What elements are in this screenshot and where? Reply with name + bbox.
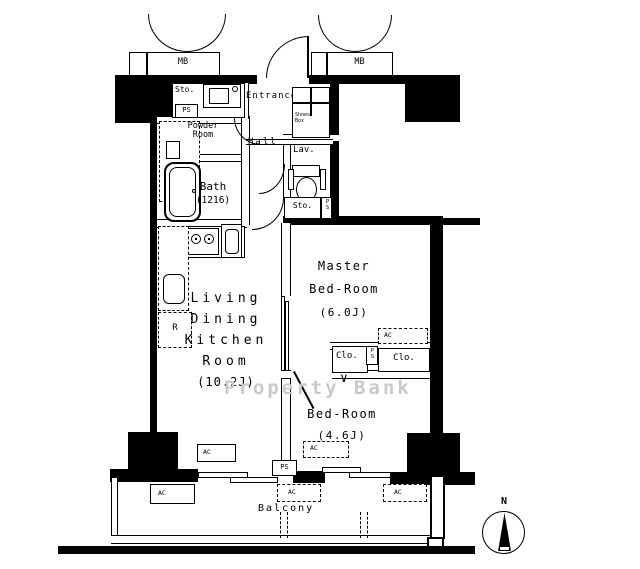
toilet-tank-icon [292,165,320,177]
washer-icon [209,88,229,104]
ground-line [58,546,475,554]
shoes-box-label: Shoes Box [295,112,313,124]
wall [110,469,198,482]
ldk-line2: Dining [163,309,289,330]
hall-label: Hall [248,138,278,148]
hall-storage-label: Sto. [284,202,321,211]
compass-needle-base [499,546,510,551]
wall-stub [443,218,480,225]
ac-outdoor-unit [277,484,321,502]
ac-outdoor-unit [150,484,195,504]
wall [430,224,443,435]
washer-faucet-icon [232,86,238,92]
wall-column [405,79,460,122]
ldk-line4: Room [163,351,289,372]
partition [281,223,291,296]
ac-label: AC [394,489,402,496]
ac-outdoor-unit [383,484,427,502]
entrance-door-arc [266,36,309,78]
door-arc [187,14,226,52]
meter-box-right-label: MB [328,58,391,67]
closet-right-label: Clo. [378,354,430,364]
pipe-space-label: PS [369,348,375,360]
balcony-rail [111,535,443,544]
bath-name: Bath [186,181,240,193]
window [230,477,278,483]
powder-room-label: Powder Room [180,122,226,141]
ac-label: AC [158,490,166,497]
door-arc [252,198,284,230]
balcony-partition [280,512,288,538]
door-arc [148,14,187,52]
ac-label: AC [203,449,211,456]
door-arc [259,164,285,194]
burner-dot [195,238,197,240]
window [349,472,391,478]
storage-upper-label: Sto. [175,86,194,95]
shoes-box-divider [293,102,329,104]
bedroom-name: Bed-Room [296,403,388,425]
balcony-rail [430,477,445,539]
balcony-edge [111,478,118,538]
washbasin-icon [166,141,180,159]
closet-left-label: Clo. [336,352,358,362]
pipe-space-label: PS [175,107,198,115]
powder-line2: Room [180,131,226,140]
pipe-space-label: PS [272,464,297,472]
door-arc [355,15,392,52]
door-arc [318,15,355,52]
master-size: (6.0J) [298,301,390,324]
lavatory-label: Lav. [293,146,315,156]
bath-size: (1216) [186,196,240,206]
ac-label: AC [310,445,318,452]
balcony-partition [360,512,368,538]
master-line1: Master [298,255,390,278]
wall [293,471,325,483]
meter-box-left-label: MB [148,58,218,67]
bath-label: Bath (1216) [186,181,240,207]
toilet-wing-icon [288,169,294,190]
compass-north-label: N [494,496,514,507]
ldk-line3: Kitchen [163,330,289,351]
ac-label: AC [384,332,392,339]
floor-plan: MB MB Sto. PS Entrance Shoes Box Powder … [0,0,640,569]
entrance-door-leaf [307,36,309,78]
wall [150,120,157,434]
sink-basin [225,229,239,254]
burner-dot [208,238,210,240]
master-line2: Bed-Room [298,278,390,301]
ldk-line1: Living [163,288,289,309]
ac-label: AC [288,489,296,496]
room-label-master: Master Bed-Room (6.0J) [298,255,390,324]
toilet-wing-icon [320,169,326,190]
wall-corner-block [407,433,460,477]
watermark: Property Bank [224,377,412,399]
entrance-label: Entrance [246,92,297,102]
pipe-space-label: PS [324,199,330,211]
